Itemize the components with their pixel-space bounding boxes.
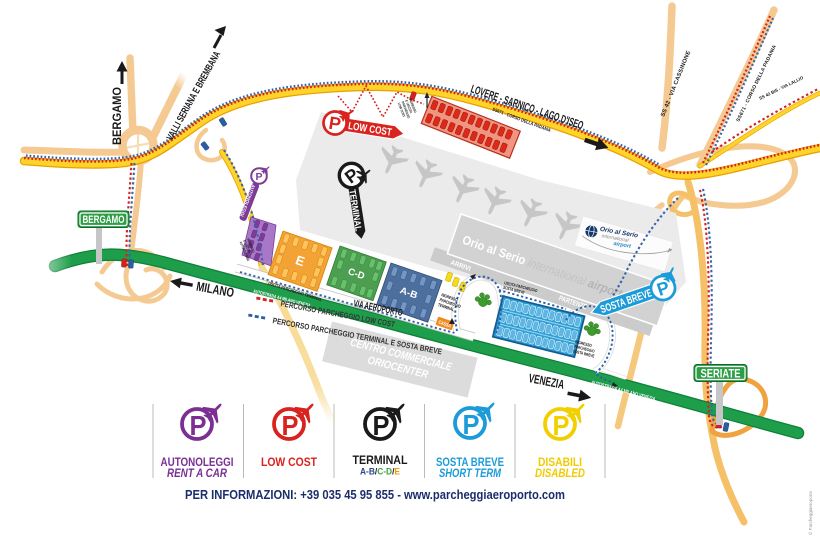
svg-text:LOW COST: LOW COST	[261, 455, 318, 469]
svg-text:DISABLED: DISABLED	[535, 466, 585, 480]
svg-text:SERIATE: SERIATE	[701, 369, 741, 381]
svg-text:SHORT TERM: SHORT TERM	[439, 466, 502, 480]
svg-text:P: P	[255, 171, 262, 183]
svg-text:BERGAMO: BERGAMO	[83, 214, 125, 226]
svg-text:TERMINAL: TERMINAL	[353, 453, 408, 467]
svg-text:RENT A CAR: RENT A CAR	[167, 466, 227, 480]
svg-text:A-B/C-D/E: A-B/C-D/E	[360, 467, 400, 478]
svg-text:BERGAMO: BERGAMO	[110, 87, 124, 145]
svg-text:© Parcheggiaeroporto: © Parcheggiaeroporto	[807, 490, 813, 535]
svg-text:PER INFORMAZIONI: +39 035 45 9: PER INFORMAZIONI: +39 035 45 95 855 - ww…	[185, 488, 565, 502]
